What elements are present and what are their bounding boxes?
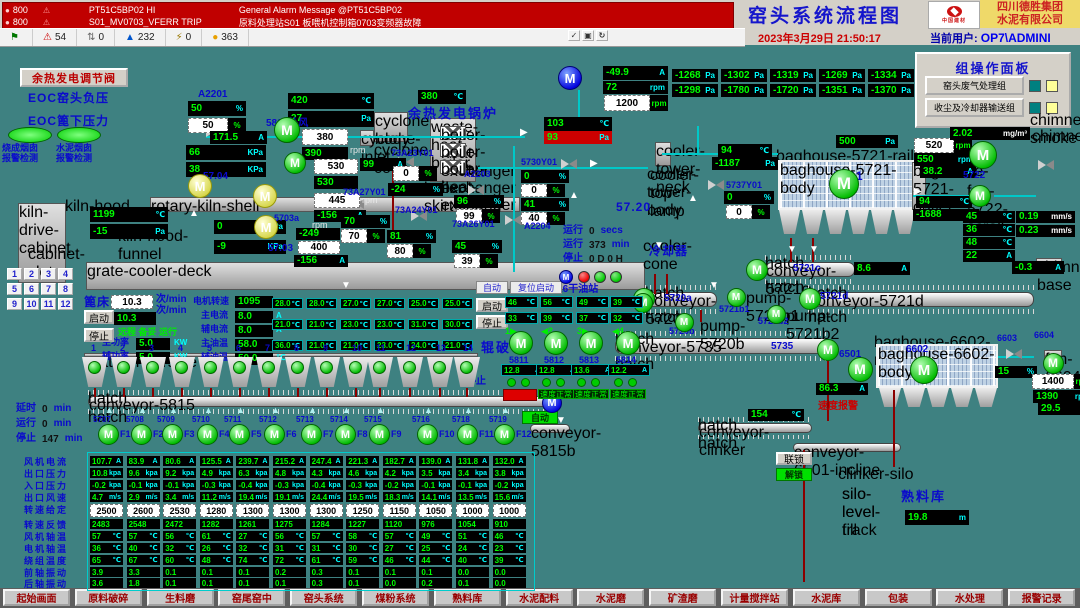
nav-5[interactable]: 窑头系统 bbox=[290, 589, 357, 606]
gauge-value: -15 bbox=[93, 227, 107, 237]
fan-motor-5713[interactable]: M bbox=[301, 424, 322, 445]
timer-label: 延时 bbox=[16, 404, 36, 414]
setpoint-sp380[interactable]: 380 bbox=[302, 129, 348, 145]
gauge-value: 66 bbox=[189, 148, 200, 158]
fan-7-8: 30℃ bbox=[346, 543, 379, 553]
flow-arrow-icon: ▲ bbox=[688, 194, 702, 206]
flow-arrow-icon: ▼ bbox=[809, 245, 823, 257]
shape: cyclone-inlet bbox=[360, 130, 374, 146]
grate-temp-1-3: 23.0℃ bbox=[374, 319, 405, 330]
baghouse-5721-hopper bbox=[802, 210, 823, 234]
gauge-vib1: 0.19mm/s bbox=[1016, 211, 1075, 223]
nav-4[interactable]: 窑尾窑中 bbox=[218, 589, 285, 606]
cr_reset-button[interactable]: 复位启动 bbox=[510, 281, 562, 294]
fan-3-12: 15.6m/s bbox=[493, 492, 526, 502]
motor-m5720b[interactable]: M bbox=[675, 313, 694, 332]
fan-3-1: 4.7m/s bbox=[90, 492, 123, 502]
label-cool_id: 57.20 bbox=[616, 201, 651, 213]
fan-motor-5718[interactable]: M bbox=[457, 424, 478, 445]
gauge-value: -1319 bbox=[773, 71, 799, 81]
motor-5813[interactable]: M bbox=[579, 331, 603, 355]
nav-12[interactable]: 水泥库 bbox=[793, 589, 860, 606]
shape: hatch bbox=[88, 409, 558, 414]
label-boiler: 余热发电锅炉 bbox=[408, 107, 498, 120]
motor-m5721[interactable]: M bbox=[829, 169, 859, 199]
timer-value: 0 bbox=[42, 404, 48, 415]
fan-motor-5707[interactable]: M bbox=[98, 424, 119, 445]
alarm-row[interactable]: ● 800 ⚠ PT51C5BP02 HI General Alarm Mess… bbox=[5, 4, 725, 16]
baghouse-5721-hopper bbox=[894, 210, 915, 234]
crusher-lamp bbox=[556, 378, 565, 387]
fan-motor-5719[interactable]: M bbox=[494, 424, 515, 445]
hopper-number: 7 bbox=[265, 344, 270, 353]
kiln-pressure-10: -1370Pa bbox=[868, 84, 914, 97]
fan-1-8: 4.6kpa bbox=[346, 468, 379, 478]
hopper-drop-line bbox=[297, 388, 299, 397]
setpoint-unit: % bbox=[547, 184, 565, 197]
cr_stop-button[interactable]: 停止 bbox=[476, 315, 508, 329]
ack-refresh-icon[interactable]: ↻ bbox=[596, 30, 608, 41]
cr_start-button[interactable]: 启动 bbox=[476, 298, 508, 312]
fan-speed-setpoint-6[interactable]: 1300 bbox=[273, 504, 306, 517]
gauge-unit: rpm bbox=[650, 84, 665, 92]
status-fault-icon: ⚡0 bbox=[166, 29, 203, 46]
gauge-unit: ℃ bbox=[599, 120, 609, 128]
shape: boiler-heat-exchanger bbox=[440, 160, 466, 174]
setpoint-value[interactable]: 1400 bbox=[1032, 374, 1074, 389]
dust-cooler-transport-group-button[interactable]: 收尘及冷却器输送组 bbox=[925, 98, 1024, 117]
fan-3-11: 13.5m/s bbox=[456, 492, 489, 502]
label-smoke2a: 水泥烟囱 bbox=[56, 144, 92, 153]
setpoint-value[interactable]: 70 bbox=[341, 229, 367, 243]
fan-1-12: 3.8kpa bbox=[493, 468, 526, 478]
setpoint-sp400[interactable]: 400 bbox=[298, 241, 340, 254]
setpoint-sp530[interactable]: 530 bbox=[314, 159, 358, 174]
setpoint-value[interactable]: 0 bbox=[726, 205, 752, 219]
nav-9[interactable]: 水泥磨 bbox=[577, 589, 644, 606]
setpoint-value[interactable]: 80 bbox=[387, 244, 413, 258]
ack-page-icon[interactable]: ▣ bbox=[582, 30, 594, 41]
gauge-value: 94 bbox=[721, 146, 732, 156]
gauge-unit: % bbox=[492, 243, 499, 251]
fault-icon: ⚡ bbox=[176, 32, 183, 43]
label-spd_alarm: 速度报警 bbox=[818, 402, 858, 412]
setpoint-unit: rpm bbox=[650, 95, 668, 111]
fan-id: 5708 bbox=[126, 416, 144, 424]
gauge-unit: Pa bbox=[705, 72, 715, 80]
nav-14[interactable]: 水处理 bbox=[936, 589, 1003, 606]
fan-1-11: 3.4kpa bbox=[456, 468, 489, 478]
gauge-i863: 86.3A bbox=[816, 383, 868, 395]
gauge-t420: 420℃ bbox=[288, 93, 374, 109]
gauge-unit: Pa bbox=[803, 87, 813, 95]
nav-11[interactable]: 计量搅拌站 bbox=[721, 589, 788, 606]
shape: hatch bbox=[88, 390, 558, 395]
ack-check-icon[interactable]: ✓ bbox=[568, 30, 580, 41]
gauge-value: 1095 bbox=[238, 297, 260, 307]
alarm-banner[interactable]: ● 800 ⚠ PT51C5BP02 HI General Alarm Mess… bbox=[2, 2, 734, 29]
gauge-k66: 66KPa bbox=[186, 145, 266, 160]
timer-label: 运行 bbox=[16, 419, 36, 429]
status-count: 232 bbox=[138, 32, 155, 43]
fan-10-1: 3.6 bbox=[90, 578, 123, 588]
fan-8-2: 67℃ bbox=[127, 555, 160, 565]
shape: cabinet-slot bbox=[28, 246, 58, 262]
fan-speed-setpoint-2[interactable]: 2600 bbox=[127, 504, 160, 517]
fan-1-9: 4.2kpa bbox=[383, 468, 416, 478]
crusher-current-5813: 13.6A bbox=[571, 364, 613, 376]
motor-m5803a[interactable]: M bbox=[274, 117, 300, 143]
hopper-lamp bbox=[262, 361, 275, 374]
motor-m6604[interactable]: M bbox=[1043, 353, 1064, 374]
setpoint-v5737sp[interactable]: 0% bbox=[726, 205, 770, 219]
setpoint-value[interactable]: 0 bbox=[393, 166, 419, 181]
shape: pump-5720b bbox=[700, 318, 714, 326]
fan-id: 5719 bbox=[489, 416, 507, 424]
gauge-i295: 29.5A bbox=[1038, 403, 1080, 415]
fan-motor-5710[interactable]: M bbox=[197, 424, 218, 445]
crusher-lamp bbox=[591, 378, 600, 387]
fan-motor-5712[interactable]: M bbox=[264, 424, 285, 445]
alarm-station: 800 bbox=[13, 17, 43, 27]
alarm-row[interactable]: ● 800 ⚠ S01_MV0703_VFERR TRIP 原料处理站S01 板… bbox=[5, 16, 725, 28]
company-line: 水泥有限公司 bbox=[980, 14, 1080, 27]
keypad-11[interactable]: 11 bbox=[41, 298, 56, 310]
gauge-cur2: 8.0 bbox=[235, 325, 273, 337]
gauge-value: 10.3 bbox=[117, 314, 136, 324]
setpoint-v5730sp1[interactable]: 0% bbox=[521, 184, 565, 197]
motor-m5722f[interactable]: M bbox=[969, 185, 991, 207]
nav-6[interactable]: 煤粉系统 bbox=[362, 589, 429, 606]
fan-7-7: 31℃ bbox=[310, 543, 343, 553]
hopper-lamp bbox=[204, 361, 217, 374]
fan-9-9: 0.1 bbox=[383, 567, 416, 577]
motor-m5721b2[interactable]: M bbox=[767, 305, 786, 324]
fan-2-11: -0.1kpa bbox=[456, 480, 489, 490]
fan-1-2: 9.6kpa bbox=[127, 468, 160, 478]
hopper-number: 2 bbox=[120, 344, 125, 353]
label-v5730: 5730Y01 bbox=[521, 158, 557, 167]
crusher-lamp bbox=[542, 378, 551, 387]
fan-motor-5715[interactable]: M bbox=[369, 424, 390, 445]
status-lamp bbox=[610, 271, 622, 283]
fan-f-label: F5 bbox=[251, 430, 262, 439]
fan-motor-5716[interactable]: M bbox=[417, 424, 438, 445]
motor-mtop[interactable]: M bbox=[558, 66, 582, 90]
fan-speed-setpoint-3[interactable]: 2530 bbox=[163, 504, 196, 517]
nav-3[interactable]: 生料磨 bbox=[147, 589, 214, 606]
motor-m5722[interactable]: M bbox=[969, 141, 997, 169]
valve-icon[interactable] bbox=[468, 185, 484, 195]
fan-0-1: 107.7A bbox=[90, 456, 123, 466]
hopper-number: 5 bbox=[207, 344, 212, 353]
fan-10-4: 0.1 bbox=[200, 578, 233, 588]
timer-unit: min bbox=[65, 434, 83, 444]
setpoint-value[interactable]: 380 bbox=[302, 129, 348, 145]
label-a2201: A2201 bbox=[198, 90, 227, 100]
company-logo: 中国建材 bbox=[928, 1, 980, 29]
status-event-up-icon: ▲232 bbox=[115, 29, 166, 46]
setpoint-v7327sp[interactable]: 70% bbox=[341, 229, 385, 243]
fan-speed-setpoint-10[interactable]: 1050 bbox=[419, 504, 452, 517]
fan-id: 5712 bbox=[259, 416, 277, 424]
gauge-value: 1199 bbox=[93, 210, 115, 220]
setpoint-v7324sp[interactable]: 80% bbox=[387, 244, 431, 258]
keypad-8[interactable]: 8 bbox=[58, 283, 73, 295]
setpoint-unit: rpm bbox=[1074, 374, 1080, 389]
motor-m5735[interactable]: M bbox=[817, 339, 839, 361]
fan-motor-5714[interactable]: M bbox=[335, 424, 356, 445]
timer-label: 停止 bbox=[16, 434, 36, 444]
alarm-tag: PT51C5BP02 HI bbox=[89, 5, 239, 15]
setpoint-value[interactable]: 400 bbox=[298, 241, 340, 254]
fan-9-7: 0.3 bbox=[310, 567, 343, 577]
crusher-lamp bbox=[521, 378, 530, 387]
fan-speed-setpoint-8[interactable]: 1250 bbox=[346, 504, 379, 517]
fan-9-8: 0.1 bbox=[346, 567, 379, 577]
gauge-value: 103 bbox=[547, 119, 564, 129]
motor-m6602[interactable]: M bbox=[910, 356, 938, 384]
label-f_rpm: 电机转速 bbox=[193, 297, 229, 306]
cr_auto-button[interactable]: 自动 bbox=[476, 281, 508, 294]
fan-10-9: 0.0 bbox=[383, 578, 416, 588]
status-suppressed-icon: ⇅0 bbox=[77, 29, 115, 46]
setpoint-v7326sp[interactable]: 39% bbox=[454, 254, 498, 268]
gauge-value: 72 bbox=[606, 83, 617, 93]
gauge-value: -249 bbox=[299, 229, 319, 239]
fan-speed-setpoint-7[interactable]: 1300 bbox=[310, 504, 343, 517]
grate-temp-0-3: 27.0℃ bbox=[374, 298, 405, 309]
fan-5-8: 1227 bbox=[346, 519, 379, 529]
company-name: 四川德胜集团 水泥有限公司 bbox=[980, 0, 1080, 28]
fan-motor-5709[interactable]: M bbox=[162, 424, 183, 445]
burn-smoke-indicator bbox=[8, 127, 52, 143]
label-f_aux_i: 辅电流 bbox=[201, 325, 228, 334]
fan-7-11: 24℃ bbox=[456, 543, 489, 553]
crusher-lamp bbox=[577, 378, 586, 387]
keypad-7[interactable]: 7 bbox=[41, 283, 56, 295]
kiln-head-waste-gas-group-button[interactable]: 窑头废气处理组 bbox=[925, 76, 1024, 95]
motor-m5703b[interactable]: M bbox=[254, 215, 278, 239]
gauge-bed_pv: 10.3 bbox=[114, 312, 156, 325]
hopper-lamp bbox=[433, 361, 446, 374]
setpoint-sp520[interactable]: 520rpm bbox=[914, 138, 972, 153]
crusher-ok-box: 速度正常 bbox=[538, 389, 574, 399]
setpoint-sp1200[interactable]: 1200rpm bbox=[604, 95, 668, 111]
hopper-lamp bbox=[373, 361, 386, 374]
gauge-value: 8.0 bbox=[238, 312, 252, 322]
setpoint-value[interactable]: 530 bbox=[314, 159, 358, 174]
setpoint-value[interactable]: 1200 bbox=[604, 95, 650, 111]
gauge-unit: Pa bbox=[754, 72, 764, 80]
gauge-i171: 171.5A bbox=[210, 131, 267, 144]
setpoint-bed_sp[interactable]: 10.3 bbox=[111, 295, 153, 309]
nav-2[interactable]: 原料破碎 bbox=[75, 589, 142, 606]
fan-3-2: 2.9m/s bbox=[127, 492, 160, 502]
gauge-a2201_pv: 50% bbox=[188, 101, 246, 116]
fan-1-6: 4.8kpa bbox=[273, 468, 306, 478]
gauge-unit: A bbox=[1006, 252, 1012, 260]
group-status-square bbox=[1029, 80, 1041, 92]
gauge-unit: ℃ bbox=[1002, 239, 1012, 247]
gauge-unit: % bbox=[559, 201, 566, 209]
fan-6-6: 56℃ bbox=[273, 531, 306, 541]
gauge-value: 171.5 bbox=[213, 133, 238, 143]
fan-motor-5708[interactable]: M bbox=[131, 424, 152, 445]
setpoint-v7323sp[interactable]: 0% bbox=[393, 166, 437, 181]
alarm-station: 800 bbox=[13, 5, 43, 15]
datetime: 2023年3月29日 21:50:17 bbox=[758, 30, 881, 46]
gauge-value: 93 bbox=[547, 133, 558, 143]
motor-m5803b[interactable]: M bbox=[284, 152, 306, 174]
fan-f-label: F3 bbox=[184, 430, 195, 439]
keypad-3[interactable]: 3 bbox=[41, 268, 56, 280]
kiln-pressure-4: -1269Pa bbox=[819, 69, 865, 82]
shape: baghouse-6602-rail bbox=[874, 334, 1000, 344]
gauge-value: 390 bbox=[305, 149, 322, 159]
fan-2-5: -0.4kpa bbox=[236, 480, 269, 490]
hopper-lamp bbox=[175, 361, 188, 374]
nav-8[interactable]: 水泥配料 bbox=[506, 589, 573, 606]
oil-temp-0-3: 39℃ bbox=[610, 296, 643, 308]
gauge-value: -1351 bbox=[822, 86, 848, 96]
hopper-drop-line bbox=[210, 388, 212, 397]
gauge-value: 29.5 bbox=[1041, 404, 1060, 414]
setpoint-value[interactable]: 39 bbox=[454, 254, 480, 268]
gauge-unit: Pa bbox=[885, 138, 895, 146]
page-title: 窑头系统流程图 bbox=[748, 1, 926, 27]
gauge-t94b: 94℃ bbox=[916, 196, 972, 208]
fan-0-7: 247.4A bbox=[310, 456, 343, 466]
hopper-number: 14 bbox=[463, 344, 473, 353]
fan-speed-setpoint-9[interactable]: 1150 bbox=[383, 504, 416, 517]
kiln-pressure-7: -1780Pa bbox=[721, 84, 767, 97]
nav-1[interactable]: 起始画面 bbox=[3, 589, 70, 606]
motor-m5721b1[interactable]: M bbox=[727, 288, 746, 307]
hopper-lamp bbox=[146, 361, 159, 374]
motor-m5703a[interactable]: M bbox=[253, 184, 277, 208]
fan-speed-setpoint-1[interactable]: 2500 bbox=[90, 504, 123, 517]
hopper-drop-line bbox=[239, 388, 241, 397]
timer-value: 0 bbox=[589, 226, 595, 237]
fan-speed-setpoint-5[interactable]: 1300 bbox=[236, 504, 269, 517]
keypad-2[interactable]: 2 bbox=[24, 268, 39, 280]
fan-5-9: 1120 bbox=[383, 519, 416, 529]
fan-10-6: 0.1 bbox=[273, 578, 306, 588]
nav-10[interactable]: 矿渣磨 bbox=[649, 589, 716, 606]
gauge-unit: Pa bbox=[852, 72, 862, 80]
setpoint-value[interactable]: 0 bbox=[521, 184, 547, 197]
fan-motor-5711[interactable]: M bbox=[229, 424, 250, 445]
hopper-drop-line bbox=[152, 388, 154, 397]
motor-m5721c[interactable]: M bbox=[746, 259, 768, 281]
fan-5-10: 976 bbox=[419, 519, 452, 529]
keypad-1[interactable]: 1 bbox=[7, 268, 22, 280]
hopper-drop-line bbox=[326, 388, 328, 397]
fan-speed-setpoint-12[interactable]: 1000 bbox=[493, 504, 526, 517]
keypad-9[interactable]: 9 bbox=[7, 298, 22, 310]
motor-m5704[interactable]: M bbox=[188, 174, 212, 198]
fan-0-6: 215.2A bbox=[273, 456, 306, 466]
suppressed-icon: ⇅ bbox=[87, 32, 95, 43]
setpoint-value[interactable]: 10.3 bbox=[111, 295, 153, 309]
gauge-unit: Pa bbox=[705, 87, 715, 95]
kiln-pressure-8: -1720Pa bbox=[770, 84, 816, 97]
fan-5-5: 1261 bbox=[236, 519, 269, 529]
setpoint-value[interactable]: 520 bbox=[914, 138, 954, 153]
keypad-12[interactable]: 12 bbox=[58, 298, 73, 310]
fan-id: 5713 bbox=[296, 416, 314, 424]
timer-unit: min bbox=[54, 419, 72, 429]
gauge-v5730pv1: 0% bbox=[521, 170, 569, 183]
keypad-5[interactable]: 5 bbox=[7, 283, 22, 295]
kiln-head-scada-screen: ● 800 ⚠ PT51C5BP02 HI General Alarm Mess… bbox=[0, 0, 1080, 608]
gauge-i499: -49.9A bbox=[603, 66, 668, 80]
gauge-t36: 36℃ bbox=[963, 224, 1015, 236]
keypad-4[interactable]: 4 bbox=[58, 268, 73, 280]
fan-id: 5709 bbox=[157, 416, 175, 424]
fan-8-3: 60℃ bbox=[163, 555, 196, 565]
bed_start-button[interactable]: 启动 bbox=[84, 310, 114, 324]
motor-5814[interactable]: M bbox=[616, 331, 640, 355]
status-flag-icon: ⚑ bbox=[0, 29, 33, 46]
fan-2-6: -0.3kpa bbox=[273, 480, 306, 490]
motor-5811[interactable]: M bbox=[509, 331, 533, 355]
gauge-unit: ℃ bbox=[759, 147, 769, 155]
gauge-unit: % bbox=[433, 186, 440, 194]
fan-10-5: 0.1 bbox=[236, 578, 269, 588]
fan-speed-setpoint-11[interactable]: 1000 bbox=[456, 504, 489, 517]
nav-15[interactable]: 报警记录 bbox=[1008, 589, 1075, 606]
valve-icon[interactable] bbox=[708, 180, 724, 190]
interlock-button[interactable]: 联锁 bbox=[776, 452, 812, 465]
valve-icon[interactable] bbox=[561, 159, 577, 169]
unlock-button[interactable]: 解锁 bbox=[776, 468, 812, 481]
bed_stop-button[interactable]: 停止 bbox=[84, 328, 114, 342]
fan-table-row-label: 前轴振动 bbox=[24, 569, 68, 578]
gauge-p93: 93Pa bbox=[544, 131, 612, 144]
fan-3-4: 11.2m/s bbox=[200, 492, 233, 502]
keypad-10[interactable]: 10 bbox=[24, 298, 39, 310]
alarm-tag: S01_MV0703_VFERR TRIP bbox=[89, 17, 239, 27]
motor-mind[interactable]: M bbox=[559, 270, 573, 284]
fan-0-11: 131.8A bbox=[456, 456, 489, 466]
timer-label: 运行 bbox=[563, 240, 583, 250]
fan-speed-setpoint-4[interactable]: 1280 bbox=[200, 504, 233, 517]
fan-0-9: 182.7A bbox=[383, 456, 416, 466]
keypad-6[interactable]: 6 bbox=[24, 283, 39, 295]
gauge-unit: mm/s bbox=[1051, 213, 1072, 221]
valve-icon[interactable] bbox=[1038, 160, 1054, 170]
oil-temp-1-2: 37℃ bbox=[576, 312, 609, 324]
gauge-value: 45 bbox=[966, 212, 977, 222]
nav-13[interactable]: 包装 bbox=[865, 589, 932, 606]
motor-5812[interactable]: M bbox=[544, 331, 568, 355]
fan-9-2: 3.3 bbox=[127, 567, 160, 577]
motor-m6501[interactable]: M bbox=[848, 357, 873, 382]
nav-7[interactable]: 熟料库 bbox=[434, 589, 501, 606]
gauge-value: 2.02 bbox=[953, 129, 972, 139]
label-v7324: 73A24Y01 bbox=[395, 206, 438, 215]
valve-icon[interactable] bbox=[1006, 349, 1022, 359]
gauge-unit: ℃ bbox=[155, 211, 165, 219]
setpoint-sp1400[interactable]: 1400rpm bbox=[1032, 374, 1080, 389]
alarm-state-icon: ● bbox=[5, 18, 10, 27]
valve-icon[interactable] bbox=[505, 215, 521, 225]
fan-7-5: 32℃ bbox=[236, 543, 269, 553]
waste_valve-button[interactable]: 余热发电调节阀 bbox=[20, 68, 128, 87]
motor-m5721d[interactable]: M bbox=[799, 288, 821, 310]
